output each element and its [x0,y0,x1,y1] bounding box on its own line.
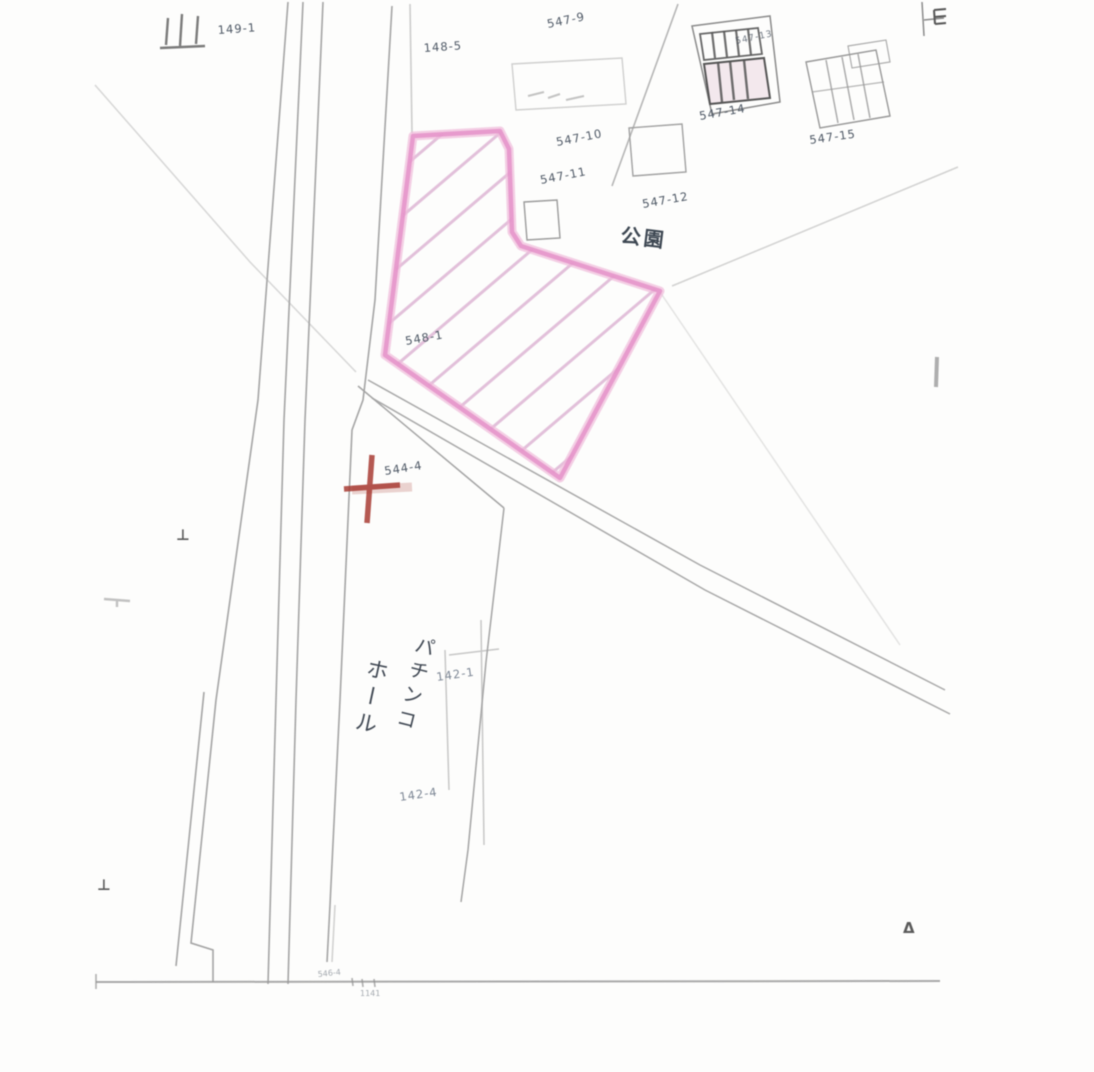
corner-lines [922,2,944,36]
map-drawing: 149-1 148-5 547-9 547-13 547-14 547-15 5… [0,0,1094,1072]
boundary-top-diagonal [612,4,678,186]
road-lines [176,2,678,984]
benchmark-symbol-upper: ⊥ [176,526,190,544]
park-boundary-east [672,167,958,286]
label-bottom-tick: 1141 [360,989,380,998]
label-548-1: 548-1 [404,327,444,347]
label-547-15: 547-15 [808,127,856,147]
label-547-13: 547-13 [735,29,774,47]
road-edge-west-outer [191,2,288,982]
tick-marks-topleft [160,14,205,48]
hatch-lines [340,0,720,653]
label-547-11: 547-11 [539,164,588,187]
label-547-10: 547-10 [555,126,604,149]
label-park: 公園 [619,223,668,252]
building-outline-parcel-edge [524,200,560,240]
bottom-frame [96,974,940,989]
building-row-2 [704,58,770,104]
boundary-above-parcel [410,4,412,133]
diagonal-road-upper [368,380,945,690]
survey-marks [104,14,937,607]
benchmark-symbol-lower: ⊥ [97,876,111,894]
label-142-1: 142-1 [435,665,475,684]
label-547-9: 547-9 [546,9,586,31]
map-canvas: 149-1 148-5 547-9 547-13 547-14 547-15 5… [0,0,1094,1072]
buildings-far-right [806,40,890,128]
label-544-4: 544-4 [383,458,423,478]
building-outline-547-12 [629,124,686,176]
road-edge-center-left [268,2,303,984]
label-149-1: 149-1 [217,20,256,37]
building-scribble-marks [528,92,584,100]
label-547-14: 547-14 [698,101,746,123]
park-boundary-south [660,292,900,645]
label-547-12: 547-12 [641,189,689,211]
label-142-4: 142-4 [398,785,438,804]
buildings-top-center [512,58,686,240]
label-148-5: 148-5 [423,38,462,55]
cadastral-map: 149-1 148-5 547-9 547-13 547-14 547-15 5… [0,0,1094,1072]
parcel-hatching [340,0,720,653]
building-outline-547-9 [512,58,626,110]
road-edge-center-right [288,2,323,984]
annotation-labels: 公園 ⊥ ⊥ Δ [97,223,915,937]
corner-structure-top-right [922,2,946,36]
triangle-point-symbol: Δ [903,919,915,937]
tick-mark-right [936,357,937,387]
road-edge-west-stub [176,692,204,966]
corner-building-mark [934,9,946,24]
parcel-labels: 149-1 148-5 547-9 547-13 547-14 547-15 5… [217,9,856,998]
bottom-border-line [96,981,940,982]
highlighted-parcel-548-1 [340,0,720,653]
parcel-bottom-stub [332,905,335,962]
faint-benchmark [104,599,130,607]
label-546-4: 546-4 [317,968,341,979]
